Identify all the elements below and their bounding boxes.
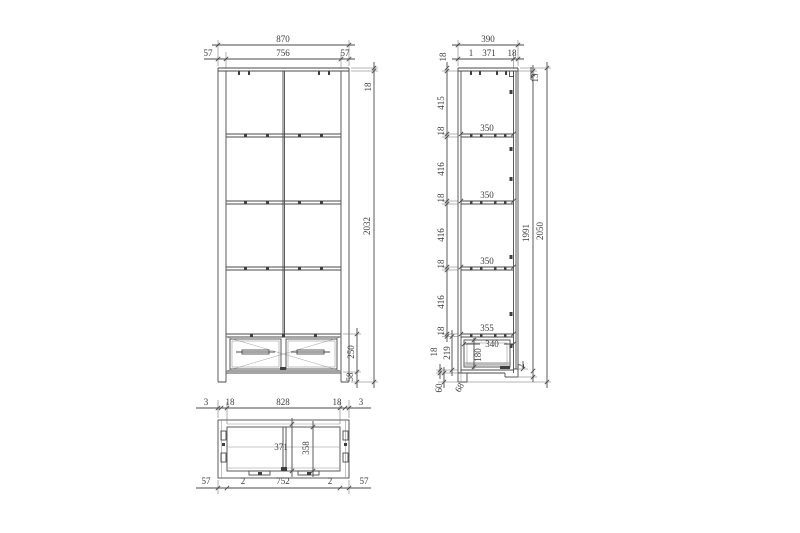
dim-front-base-height: 58 [345,372,355,382]
dim-side-col-416c: 416 [436,295,446,309]
bottom-view: 3 18 828 18 3 57 2 752 2 57 371 358 [196,397,371,494]
dim-bottom-top-18b: 18 [333,397,343,407]
side-view-dimensions: 390 1 371 18 18 13 415 18 416 18 416 18 … [429,34,551,394]
dim-side-bottom-thickness: 18 [429,347,439,357]
dim-bottom-top-3b: 3 [359,397,364,407]
dim-bottom-bot-57b: 57 [360,476,370,486]
dim-front-width-right: 57 [341,48,351,58]
dim-side-col-18a: 18 [436,126,446,136]
dim-side-back-inset: 13 [530,73,540,83]
dim-side-col-416b: 416 [436,228,446,242]
side-view-shelves [461,71,514,348]
dim-side-drawer-inner-height: 180 [473,348,483,362]
dim-front-top-thickness: 18 [363,82,373,92]
side-view-outline [458,68,518,382]
technical-drawing: 870 57 756 57 18 2032 250 58 [0,0,800,533]
dim-side-front-thickness: 18 [508,48,518,58]
dim-bottom-bot-57a: 57 [202,476,212,486]
dim-front-width-total: 870 [276,34,290,44]
dim-side-top-thickness: 18 [438,52,448,62]
dim-side-shelf1: 350 [480,123,494,133]
dim-side-col-415: 415 [436,96,446,110]
dim-bottom-bot-752: 752 [276,476,290,486]
dim-side-depth-total: 390 [481,34,495,44]
dim-front-body-height: 2032 [362,217,372,235]
dim-side-shelf2: 350 [480,190,494,200]
front-view-dimensions: 870 57 756 57 18 2032 250 58 [204,34,379,388]
dim-side-drawer-depth: 340 [485,339,499,349]
dim-front-width-center: 756 [276,48,290,58]
dim-side-col-18c: 18 [436,259,446,269]
dim-bottom-bot-2b: 2 [328,476,333,486]
drawer-handle-left [236,350,275,354]
dim-side-col-416a: 416 [436,162,446,176]
dim-bottom-inner-depth-a: 371 [274,442,288,452]
dim-side-bottom-inner: 219 [442,346,452,360]
dim-side-door-gap: 2 [516,364,526,369]
dim-side-height-total: 2050 [535,222,545,241]
dim-bottom-top-828: 828 [276,397,290,407]
front-view-drawers [226,334,341,371]
dim-bottom-top-3a: 3 [204,397,209,407]
dim-front-width-left: 57 [204,48,214,58]
dim-side-plinth-height: 60 [434,383,444,393]
dim-bottom-inner-depth-b: 358 [301,441,311,455]
dim-bottom-top-18a: 18 [226,397,236,407]
side-view: 390 1 371 18 18 13 415 18 416 18 416 18 … [429,34,551,394]
dim-side-back-gap: 1 [469,48,474,58]
dim-front-drawer-height: 250 [346,345,356,359]
front-view-shelves [226,71,341,270]
drawing-svg: 870 57 756 57 18 2032 250 58 [0,0,800,533]
front-view: 870 57 756 57 18 2032 250 58 [204,34,379,388]
dim-side-height-inner: 1991 [521,224,531,242]
dim-side-leg-depth: 68 [453,381,466,394]
dim-side-col-18d: 18 [436,326,446,336]
dim-side-depth-inner: 371 [482,48,496,58]
dim-side-shelf3: 350 [480,256,494,266]
dim-bottom-bot-2a: 2 [241,476,246,486]
dim-side-rail: 355 [480,323,494,333]
drawer-handle-right [291,350,330,354]
dim-side-col-18b: 18 [436,193,446,203]
